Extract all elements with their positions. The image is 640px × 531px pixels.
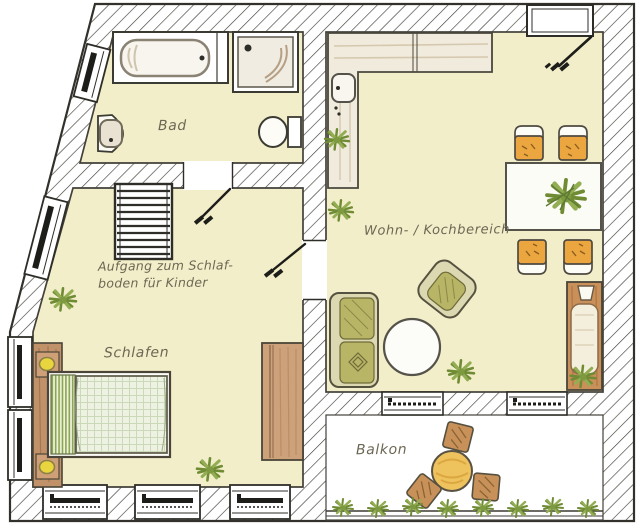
dining-chair [559,126,587,160]
loft-stairs [115,184,172,259]
floor-plan: Bad Aufgang zum Schlaf- boden für Kinder… [0,0,640,531]
loft-stairs-note: Aufgang zum Schlaf- boden für Kinder [98,256,234,291]
balcony-door-2 [507,392,567,415]
dining-chair [515,126,543,160]
shower [233,32,298,92]
floor-plan-drawing [0,0,640,531]
dining-table [506,163,601,230]
left-window-2 [8,410,32,480]
bedside-lamp [40,461,55,474]
balcony-stool [442,421,474,453]
toilet [259,117,301,147]
coffee-table [384,319,440,375]
room-label-schlafen: Schlafen [104,345,169,362]
bottom-window-3 [230,485,290,519]
bathtub [113,32,228,83]
balcony-door-1 [382,392,443,415]
top-window [527,5,593,36]
left-window-1 [8,337,32,407]
balcony-stool [472,473,500,501]
loft-stairs-note-line2: boden für Kinder [98,273,233,291]
room-label-balkon: Balkon [356,442,407,459]
bottom-window-1 [43,485,107,519]
bottom-window-2 [135,485,200,519]
room-label-bad: Bad [158,118,187,134]
dining-chair [518,240,546,274]
room-label-wohn: Wohn- / Kochbereich [364,222,510,239]
dining-chair [564,240,592,274]
bedside-lamp [40,358,55,371]
loveseat [330,293,378,387]
wardrobe [262,343,303,460]
kitchen-sink [332,74,355,102]
loft-stairs-note-line1: Aufgang zum Schlaf- [98,256,233,274]
